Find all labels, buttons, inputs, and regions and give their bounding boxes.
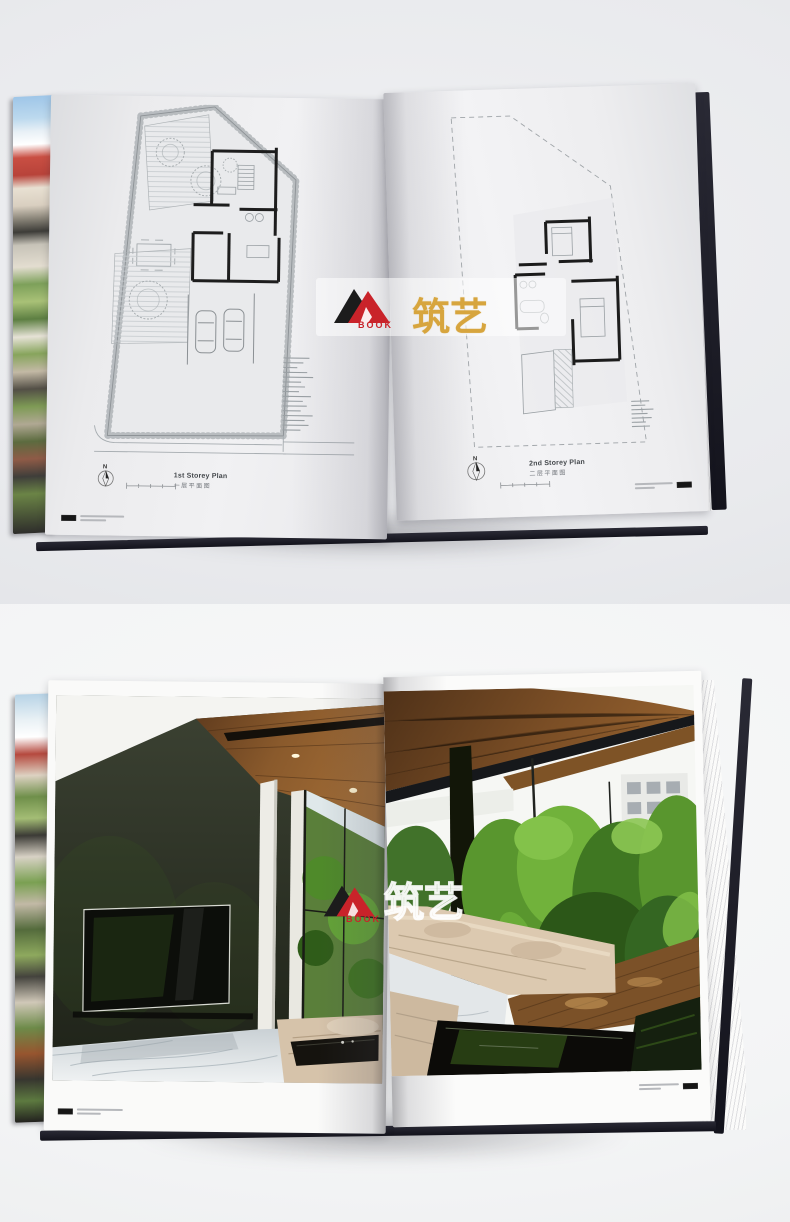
north-arrow-icon: N <box>465 452 488 483</box>
photo-floor-plan-spread: N 1st Storey Plan 一层平面图 <box>0 0 790 604</box>
svg-text:N: N <box>103 464 107 470</box>
page-footer-left <box>61 515 124 522</box>
watermark: BOOK 筑艺 <box>322 862 502 938</box>
footer-badge <box>61 515 76 521</box>
page-footer-right <box>635 482 692 490</box>
scale-bar <box>500 480 552 490</box>
footer-text-illegible <box>639 1083 679 1090</box>
footer-badge <box>677 482 692 488</box>
footer-text-illegible <box>80 515 124 522</box>
footer-badge <box>58 1108 73 1114</box>
plan-caption-en: 2nd Storey Plan <box>529 459 585 469</box>
plan-caption-zh: 二层平面图 <box>529 470 567 478</box>
scale-bar <box>126 482 178 491</box>
plan-caption-zh: 一层平面图 <box>174 483 212 491</box>
footer-text-illegible <box>635 482 673 489</box>
watermark-brand: 筑艺 <box>384 870 464 928</box>
page-footer-left <box>58 1108 123 1115</box>
watermark-brand: 筑艺 <box>412 286 488 341</box>
product-photo-page: N 1st Storey Plan 一层平面图 <box>0 0 790 1222</box>
watermark-book-label: BOOK <box>358 320 393 330</box>
footer-badge <box>683 1083 698 1089</box>
photo-interior-spread: BOOK 筑艺 <box>0 604 790 1222</box>
page-footer-right <box>639 1083 698 1090</box>
watermark: BOOK 筑艺 <box>316 278 566 336</box>
plan-caption-en: 1st Storey Plan <box>174 472 228 481</box>
svg-text:N: N <box>473 456 478 462</box>
footer-text-illegible <box>77 1109 123 1115</box>
north-arrow-icon: N <box>96 461 116 489</box>
watermark-book-label: BOOK <box>346 914 381 924</box>
